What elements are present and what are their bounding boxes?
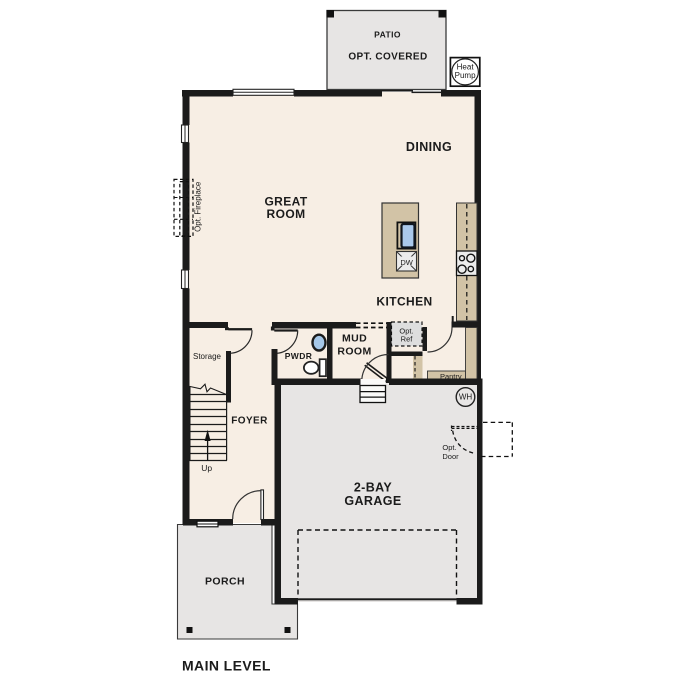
svg-text:Storage: Storage bbox=[193, 352, 222, 361]
svg-text:MUD: MUD bbox=[342, 333, 367, 345]
svg-text:Pump: Pump bbox=[455, 71, 476, 80]
svg-text:Opt.: Opt. bbox=[442, 443, 456, 452]
svg-text:ROOM: ROOM bbox=[267, 207, 306, 221]
svg-text:PORCH: PORCH bbox=[205, 576, 245, 588]
svg-text:PWDR: PWDR bbox=[285, 351, 313, 361]
svg-text:PATIO: PATIO bbox=[374, 30, 401, 40]
svg-text:FOYER: FOYER bbox=[231, 416, 268, 427]
svg-text:Door: Door bbox=[442, 452, 459, 461]
svg-text:WH: WH bbox=[459, 392, 473, 401]
svg-text:MAIN LEVEL: MAIN LEVEL bbox=[182, 658, 271, 674]
svg-text:DINING: DINING bbox=[406, 140, 452, 154]
svg-text:Ref: Ref bbox=[401, 335, 414, 344]
svg-text:KITCHEN: KITCHEN bbox=[376, 294, 432, 308]
svg-text:Opt. Fireplace: Opt. Fireplace bbox=[194, 181, 203, 232]
svg-text:ROOM: ROOM bbox=[337, 345, 371, 357]
svg-text:DW: DW bbox=[400, 258, 413, 267]
svg-text:Up: Up bbox=[201, 463, 212, 473]
svg-text:GARAGE: GARAGE bbox=[344, 494, 401, 508]
svg-text:2-BAY: 2-BAY bbox=[354, 481, 393, 495]
svg-text:OPT. COVERED: OPT. COVERED bbox=[348, 52, 427, 63]
